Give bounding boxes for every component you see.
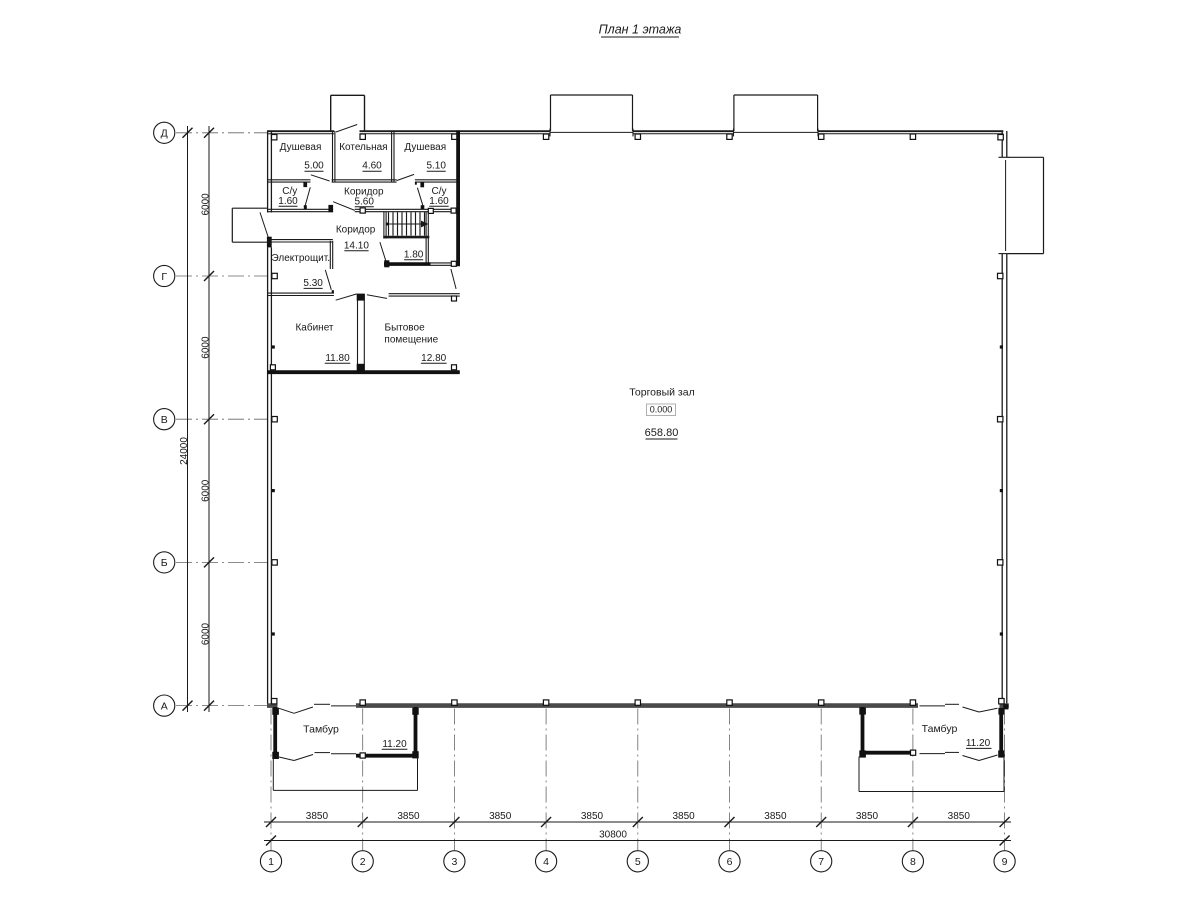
svg-text:Котельная: Котельная xyxy=(339,142,387,153)
svg-text:Коридор: Коридор xyxy=(336,225,376,236)
svg-text:3850: 3850 xyxy=(948,811,971,822)
svg-text:1.80: 1.80 xyxy=(404,250,424,261)
svg-text:658.80: 658.80 xyxy=(645,427,679,439)
svg-text:План 1 этажа: План 1 этажа xyxy=(599,23,682,37)
svg-text:Бытовое: Бытовое xyxy=(385,323,426,334)
svg-text:12.80: 12.80 xyxy=(421,353,446,364)
svg-text:6000: 6000 xyxy=(200,622,211,645)
svg-text:3850: 3850 xyxy=(764,811,787,822)
svg-text:11.20: 11.20 xyxy=(966,738,991,749)
svg-text:3: 3 xyxy=(451,856,457,868)
svg-text:3850: 3850 xyxy=(672,811,695,822)
svg-text:4.60: 4.60 xyxy=(362,161,382,172)
svg-text:5: 5 xyxy=(635,856,641,868)
svg-text:Душевая: Душевая xyxy=(404,142,446,153)
svg-text:Тамбур: Тамбур xyxy=(922,723,958,735)
svg-text:1.60: 1.60 xyxy=(429,196,449,207)
svg-text:Торговый зал: Торговый зал xyxy=(629,387,694,399)
svg-text:Электрощит.: Электрощит. xyxy=(272,253,331,264)
svg-text:Душевая: Душевая xyxy=(280,142,322,153)
svg-text:5.10: 5.10 xyxy=(426,161,446,172)
svg-text:Г: Г xyxy=(161,271,167,283)
svg-text:3850: 3850 xyxy=(397,811,420,822)
svg-text:7: 7 xyxy=(818,856,824,868)
svg-text:А: А xyxy=(161,700,168,712)
svg-text:Тамбур: Тамбур xyxy=(303,724,339,736)
svg-text:24000: 24000 xyxy=(179,437,190,465)
svg-text:3850: 3850 xyxy=(489,811,512,822)
svg-text:5.00: 5.00 xyxy=(304,161,324,172)
svg-text:В: В xyxy=(161,414,168,426)
svg-text:14.10: 14.10 xyxy=(344,241,369,252)
svg-text:Б: Б xyxy=(161,557,168,569)
svg-text:11.20: 11.20 xyxy=(382,739,407,750)
svg-text:6000: 6000 xyxy=(200,193,211,216)
svg-text:0.000: 0.000 xyxy=(650,405,673,415)
svg-text:6000: 6000 xyxy=(200,479,211,502)
svg-text:3850: 3850 xyxy=(856,811,879,822)
svg-text:2: 2 xyxy=(360,856,366,868)
svg-text:3850: 3850 xyxy=(306,811,329,822)
svg-text:11.80: 11.80 xyxy=(325,353,350,364)
svg-text:6: 6 xyxy=(727,856,733,868)
svg-text:1: 1 xyxy=(268,856,274,868)
svg-text:Д: Д xyxy=(161,128,168,140)
svg-text:3850: 3850 xyxy=(581,811,604,822)
svg-text:Кабинет: Кабинет xyxy=(295,322,333,334)
svg-text:9: 9 xyxy=(1002,856,1008,868)
svg-text:1.60: 1.60 xyxy=(278,196,298,207)
svg-text:5.30: 5.30 xyxy=(303,278,323,289)
svg-text:5.60: 5.60 xyxy=(354,197,374,208)
svg-text:6000: 6000 xyxy=(200,336,211,359)
svg-text:помещение: помещение xyxy=(384,334,438,345)
svg-text:30800: 30800 xyxy=(599,830,627,841)
svg-text:8: 8 xyxy=(910,856,916,868)
svg-text:4: 4 xyxy=(543,856,549,868)
